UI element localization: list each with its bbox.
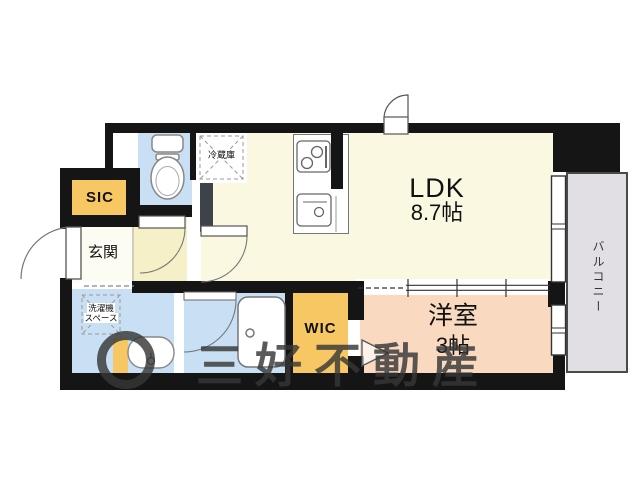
sliding-partition <box>358 279 550 297</box>
sic-label: SIC <box>72 190 128 206</box>
kitchen-sink-icon <box>297 194 336 232</box>
plan-symbols <box>0 0 640 480</box>
toilet-door <box>139 216 185 273</box>
ldk-size: 8.7帖 <box>378 201 496 224</box>
toilet-icon <box>151 135 184 199</box>
watermark-text: 三好不動産 <box>196 327 491 396</box>
window-western <box>552 305 566 355</box>
floor-plan: LDK 8.7帖 洋室 3帖 WIC SIC 玄関 冷蔵庫 洗濯機 スペース バ… <box>0 0 640 480</box>
genkan-label: 玄関 <box>74 245 132 261</box>
stove-icon <box>297 141 330 172</box>
balcony-label: バルコニー <box>590 240 607 315</box>
laundry-label: 洗濯機 スペース <box>74 303 128 323</box>
refrigerator-label: 冷蔵庫 <box>194 151 249 160</box>
ldk-door <box>201 226 247 282</box>
watermark-logo <box>97 331 155 389</box>
western-label: 洋室 <box>396 303 510 329</box>
ps-door <box>384 95 408 134</box>
entry-door <box>21 227 81 279</box>
ldk-label: LDK <box>378 174 496 202</box>
window-ldk <box>552 176 566 282</box>
